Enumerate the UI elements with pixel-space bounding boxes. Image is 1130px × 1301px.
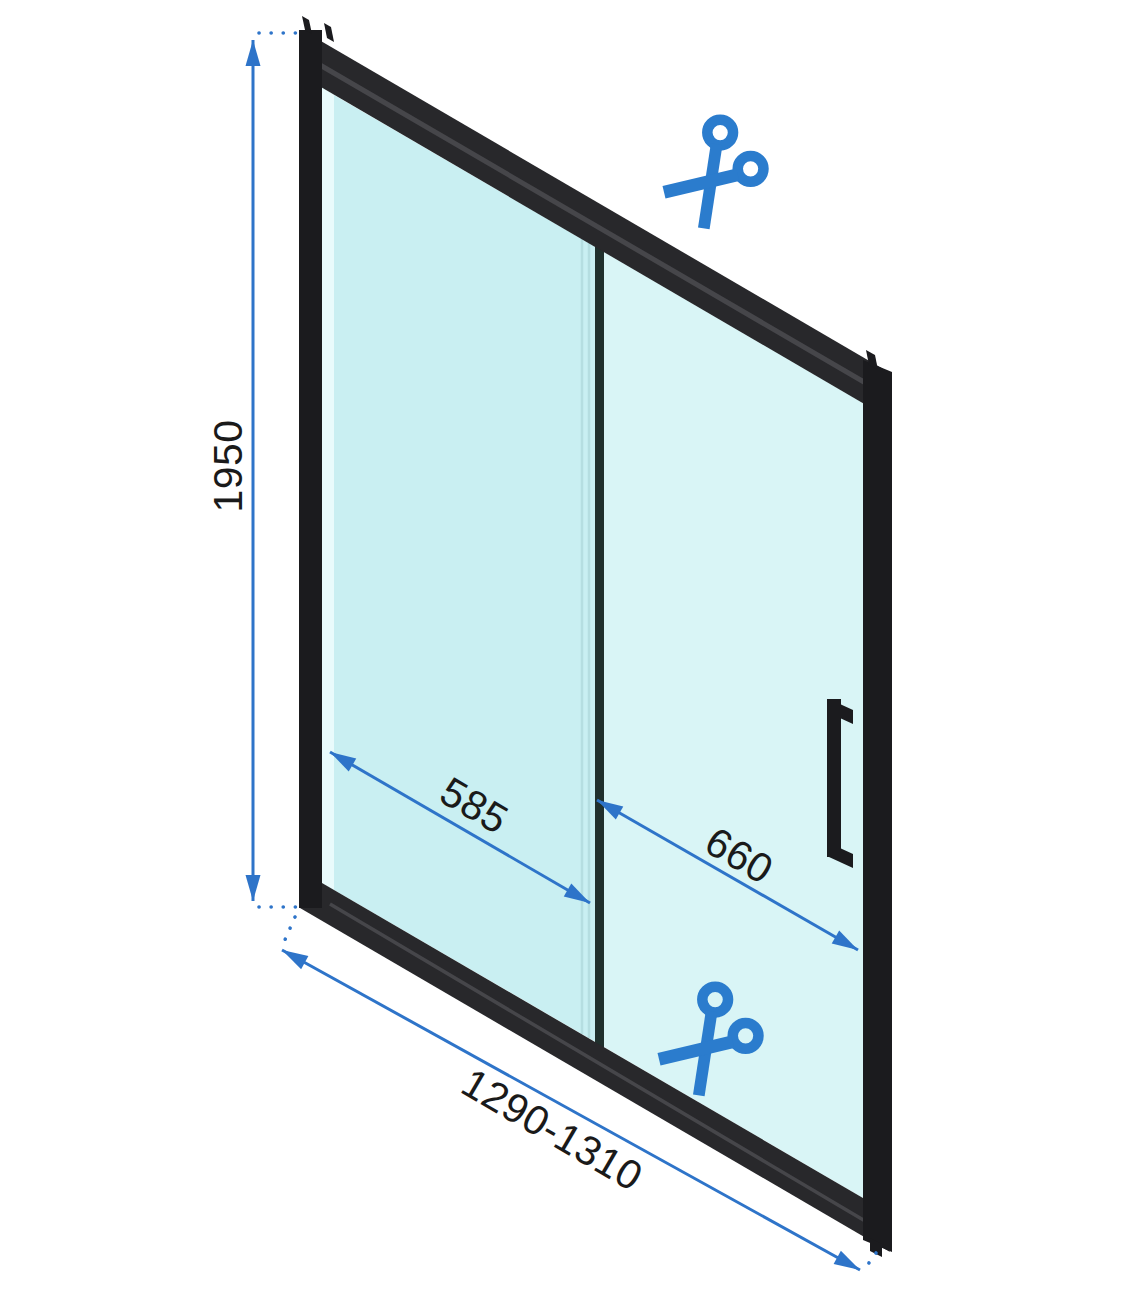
height-dimension-label: 1950	[205, 419, 252, 512]
fixed-glass-panel	[322, 88, 599, 1044]
handle-bar	[827, 699, 841, 857]
sliding-panel-edge	[595, 244, 604, 1050]
extension-dots-width-left	[284, 917, 295, 942]
mount-tab-top-left-2	[324, 23, 334, 42]
shower-door-diagram	[0, 0, 1130, 1301]
sliding-glass-panel	[599, 249, 863, 1198]
technical-drawing: 1950 585 660 1290-1310	[0, 0, 1130, 1301]
scissors-icon	[664, 120, 763, 229]
glass-panels	[322, 88, 863, 1198]
left-wall-profile	[299, 30, 322, 908]
glass-edge-highlight	[322, 88, 334, 890]
right-wall-profile	[863, 360, 892, 1252]
extension-dots-width-right	[866, 1253, 876, 1267]
